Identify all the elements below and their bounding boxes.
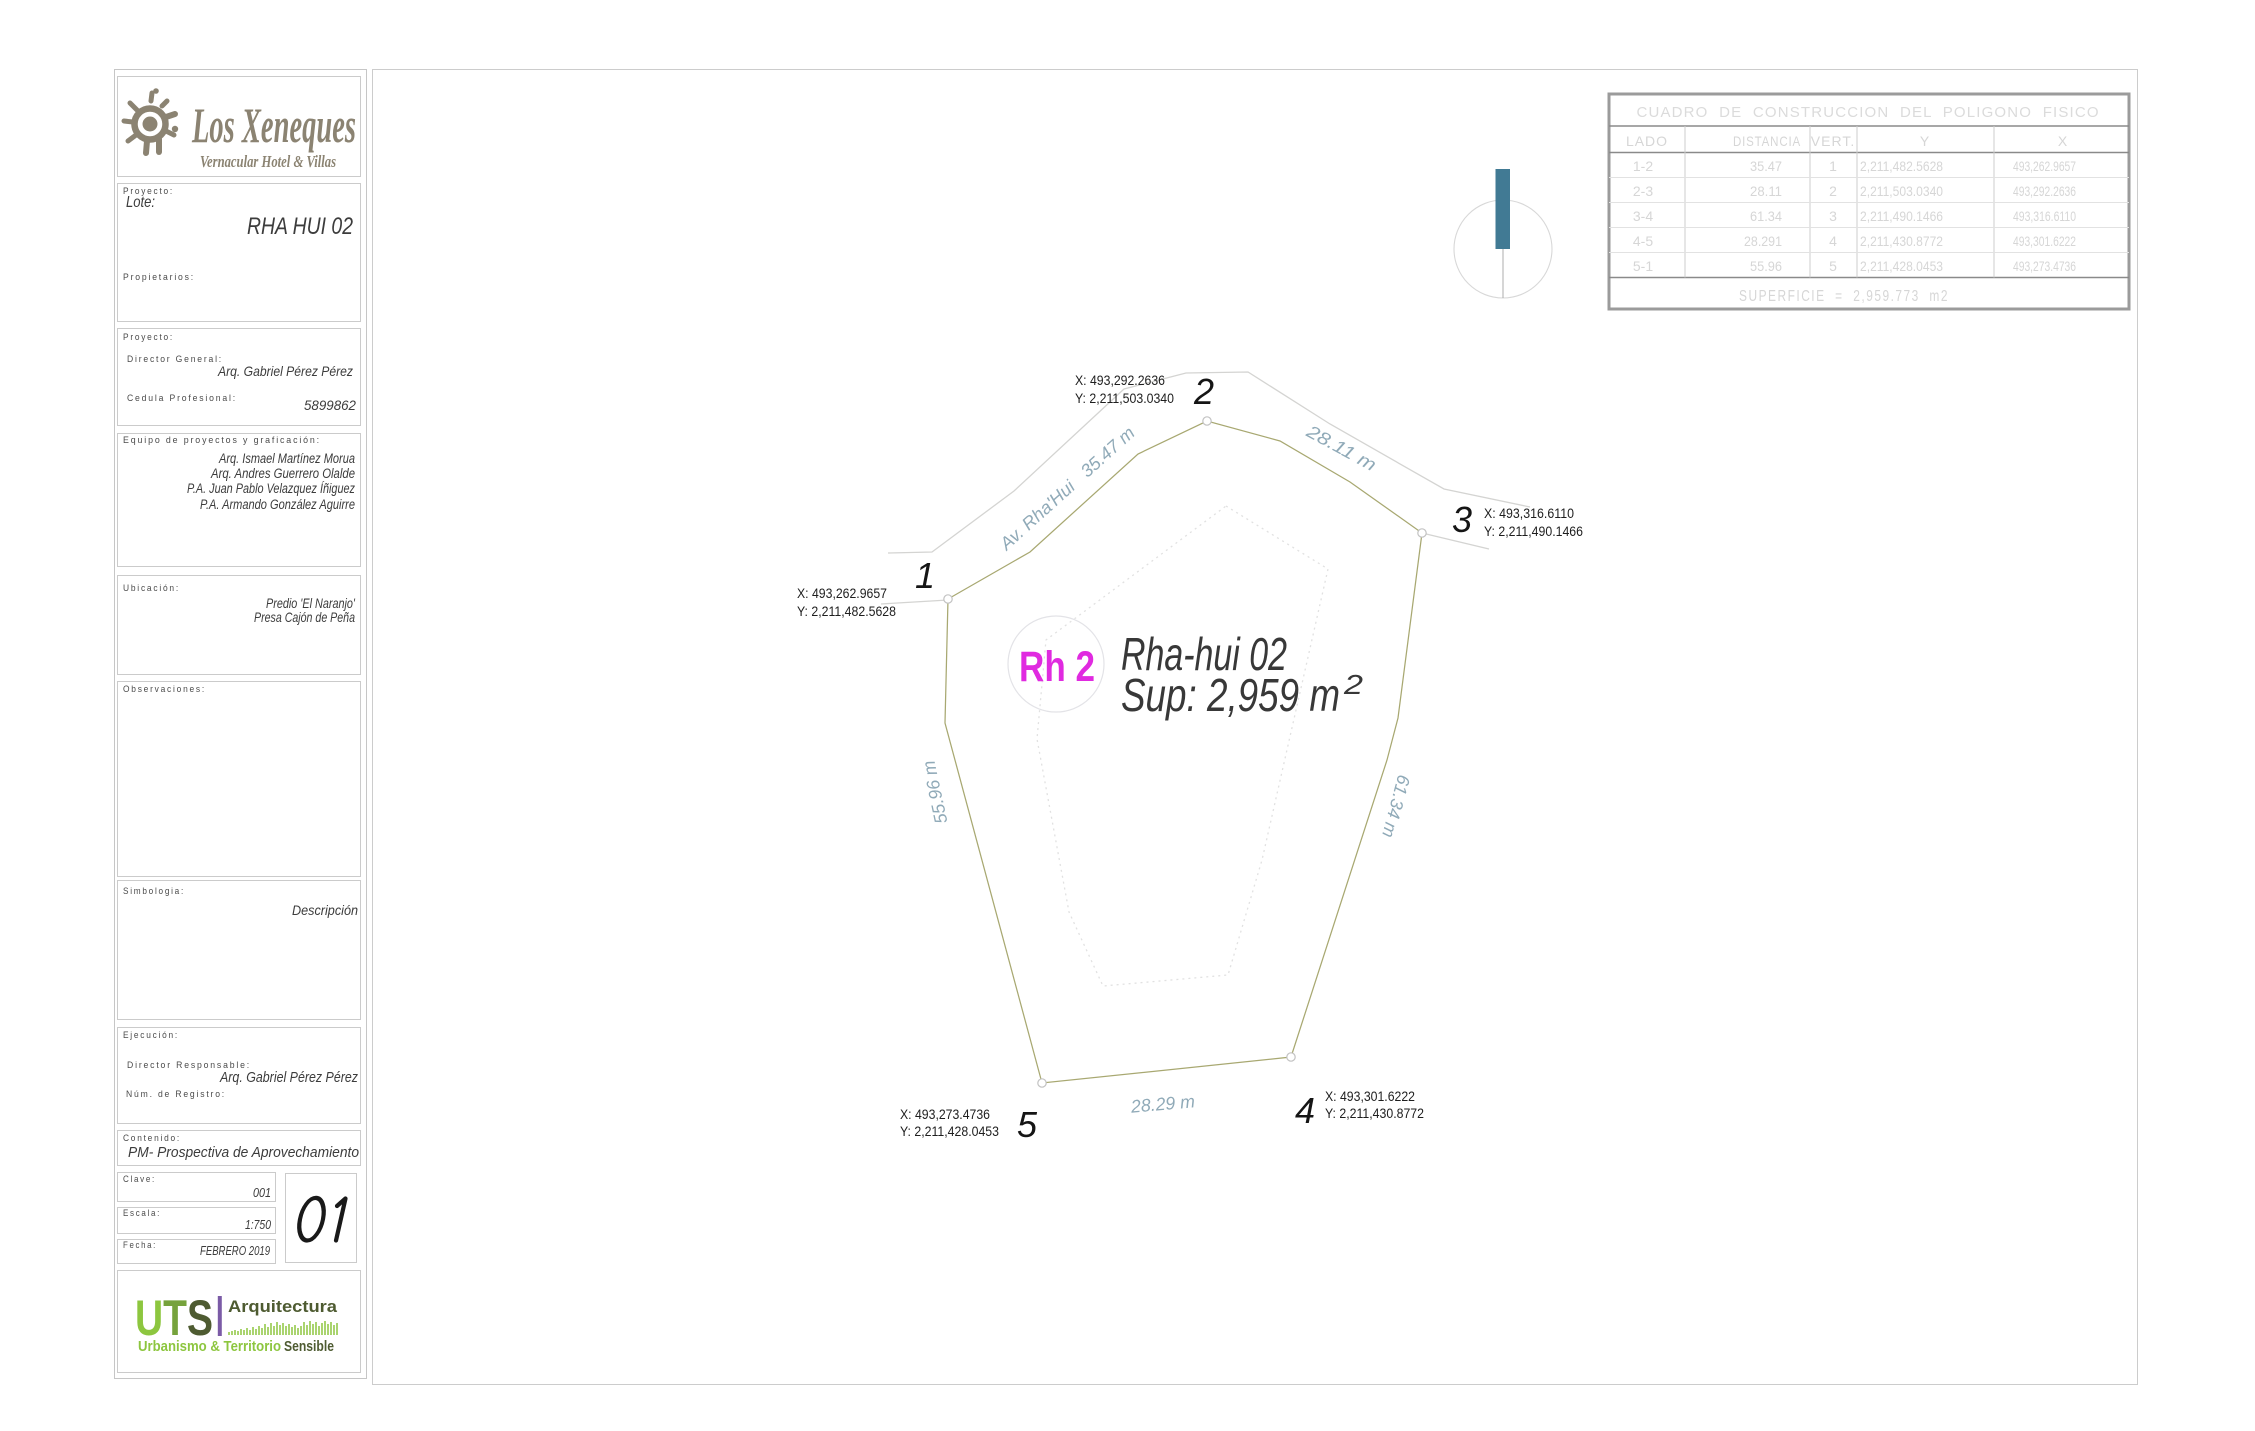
svg-text:X: 493,301.6222: X: 493,301.6222 <box>1325 1089 1415 1104</box>
svg-text:Sensible: Sensible <box>284 1338 334 1355</box>
svg-text:28.291: 28.291 <box>1744 233 1782 249</box>
svg-text:28.29 m: 28.29 m <box>1129 1091 1195 1117</box>
svg-text:P.A. Juan Pablo Velazquez Íñig: P.A. Juan Pablo Velazquez Íñiguez <box>187 481 355 496</box>
svg-text:Contenido:: Contenido: <box>123 1133 181 1144</box>
svg-text:Y: 2,211,490.1466: Y: 2,211,490.1466 <box>1484 524 1583 539</box>
svg-text:FEBRERO 2019: FEBRERO 2019 <box>200 1243 270 1258</box>
svg-text:001: 001 <box>253 1185 271 1200</box>
svg-text:2,211,490.1466: 2,211,490.1466 <box>1860 208 1943 224</box>
svg-text:Y: Y <box>1920 133 1930 149</box>
svg-text:Arq. Andres Guerrero Olalde: Arq. Andres Guerrero Olalde <box>210 466 355 481</box>
svg-text:3-4: 3-4 <box>1633 208 1653 224</box>
svg-text:CUADRO DE CONSTRUCCION DEL: CUADRO DE CONSTRUCCION DEL POLIGONO FISI… <box>1637 104 2102 121</box>
svg-text:Lote:: Lote: <box>126 194 155 211</box>
svg-text:5: 5 <box>1829 258 1837 274</box>
svg-text:2,211,430.8772: 2,211,430.8772 <box>1860 233 1943 249</box>
svg-text:Ejecución:: Ejecución: <box>123 1030 179 1041</box>
svg-text:RHA HUI 02: RHA HUI 02 <box>247 213 353 240</box>
svg-text:493,262.9657: 493,262.9657 <box>2013 158 2076 174</box>
svg-text:Arquitectura: Arquitectura <box>228 1297 338 1316</box>
svg-text:28.11: 28.11 <box>1750 183 1782 199</box>
svg-text:X: 493,262.9657: X: 493,262.9657 <box>797 586 887 601</box>
svg-text:55.96: 55.96 <box>1750 258 1782 274</box>
svg-text:Sup: 2,959 m: Sup: 2,959 m <box>1121 669 1340 721</box>
svg-text:5899862: 5899862 <box>304 397 356 413</box>
svg-text:Y: 2,211,430.8772: Y: 2,211,430.8772 <box>1325 1106 1424 1121</box>
svg-text:Proyecto:: Proyecto: <box>123 332 174 343</box>
svg-text:LADO: LADO <box>1626 133 1668 149</box>
svg-text:493,292.2636: 493,292.2636 <box>2013 183 2076 199</box>
svg-text:X: 493,273.4736: X: 493,273.4736 <box>900 1107 990 1122</box>
svg-text:61.34 m: 61.34 m <box>1378 773 1414 840</box>
svg-text:Simbologia:: Simbologia: <box>123 886 185 897</box>
svg-text:Arq. Gabriel Pérez Pérez: Arq. Gabriel Pérez Pérez <box>217 363 353 379</box>
svg-text:28.11 m: 28.11 m <box>1302 421 1379 475</box>
svg-text:2: 2 <box>1829 183 1837 199</box>
svg-text:Urbanismo & Territorio: Urbanismo & Territorio <box>138 1338 281 1355</box>
svg-text:Presa Cajón de Peña: Presa Cajón de Peña <box>254 609 355 625</box>
svg-text:Ubicación:: Ubicación: <box>123 583 180 594</box>
svg-text:X: 493,292.2636: X: 493,292.2636 <box>1075 373 1165 388</box>
svg-text:2,211,503.0340: 2,211,503.0340 <box>1860 183 1943 199</box>
svg-text:Y: 2,211,503.0340: Y: 2,211,503.0340 <box>1075 391 1174 406</box>
svg-text:Los Xeneques: Los Xeneques <box>191 97 356 153</box>
svg-text:Y: 2,211,428.0453: Y: 2,211,428.0453 <box>900 1124 999 1139</box>
svg-text:1: 1 <box>1829 158 1837 174</box>
svg-text:DISTANCIA: DISTANCIA <box>1733 133 1801 149</box>
svg-text:Arq. Gabriel Pérez Pérez: Arq. Gabriel Pérez Pérez <box>219 1070 358 1086</box>
svg-text:PM- Prospectiva de Aprovechami: PM- Prospectiva de Aprovechamiento <box>128 1144 359 1161</box>
svg-text:Director General:: Director General: <box>127 354 223 365</box>
svg-text:2,211,482.5628: 2,211,482.5628 <box>1860 158 1943 174</box>
svg-text:4: 4 <box>1829 233 1837 249</box>
svg-text:493,316.6110: 493,316.6110 <box>2013 208 2076 224</box>
svg-text:P.A. Armando González Aguirre: P.A. Armando González Aguirre <box>200 497 355 512</box>
svg-text:Escala:: Escala: <box>123 1208 161 1219</box>
svg-text:1-2: 1-2 <box>1633 158 1653 174</box>
svg-text:4: 4 <box>1295 1090 1315 1131</box>
svg-text:5: 5 <box>1017 1104 1038 1145</box>
svg-text:35.47: 35.47 <box>1750 158 1782 174</box>
svg-text:2: 2 <box>1343 669 1364 700</box>
svg-text:2,211,428.0453: 2,211,428.0453 <box>1860 258 1943 274</box>
svg-text:X: 493,316.6110: X: 493,316.6110 <box>1484 506 1574 521</box>
svg-text:493,301.6222: 493,301.6222 <box>2013 233 2076 249</box>
svg-text:1:750: 1:750 <box>245 1217 272 1232</box>
svg-text:493,273.4736: 493,273.4736 <box>2013 258 2076 274</box>
svg-text:VERT.: VERT. <box>1811 133 1855 149</box>
svg-text:Rh 2: Rh 2 <box>1019 643 1095 691</box>
svg-text:55.96 m: 55.96 m <box>919 759 952 826</box>
svg-text:Equipo de proyectos y graficac: Equipo de proyectos y graficación: <box>123 435 321 446</box>
svg-text:4-5: 4-5 <box>1633 233 1653 249</box>
svg-text:Núm. de Registro:: Núm. de Registro: <box>126 1089 226 1100</box>
svg-text:5-1: 5-1 <box>1633 258 1653 274</box>
svg-text:3: 3 <box>1452 499 1472 540</box>
svg-text:SUPERFICIE = 2,959.773 m2: SUPERFICIE = 2,959.773 m2 <box>1739 288 1949 305</box>
svg-text:Fecha:: Fecha: <box>123 1240 157 1251</box>
svg-text:2: 2 <box>1193 371 1214 412</box>
svg-text:Descripción: Descripción <box>292 902 358 918</box>
svg-text:1: 1 <box>915 555 935 596</box>
svg-text:61.34: 61.34 <box>1750 208 1782 224</box>
svg-text:Cedula Profesional:: Cedula Profesional: <box>127 393 237 404</box>
svg-text:Propietarios:: Propietarios: <box>123 272 195 283</box>
svg-text:Vernacular Hotel & Villas: Vernacular Hotel & Villas <box>200 152 336 171</box>
svg-text:Y: 2,211,482.5628: Y: 2,211,482.5628 <box>797 604 896 619</box>
svg-text:X: X <box>2058 133 2068 149</box>
svg-text:Observaciones:: Observaciones: <box>123 684 206 695</box>
svg-text:3: 3 <box>1829 208 1837 224</box>
svg-text:Clave:: Clave: <box>123 1174 156 1185</box>
svg-text:2-3: 2-3 <box>1633 183 1653 199</box>
svg-text:Arq. Ismael Martínez Morua: Arq. Ismael Martínez Morua <box>218 451 355 466</box>
